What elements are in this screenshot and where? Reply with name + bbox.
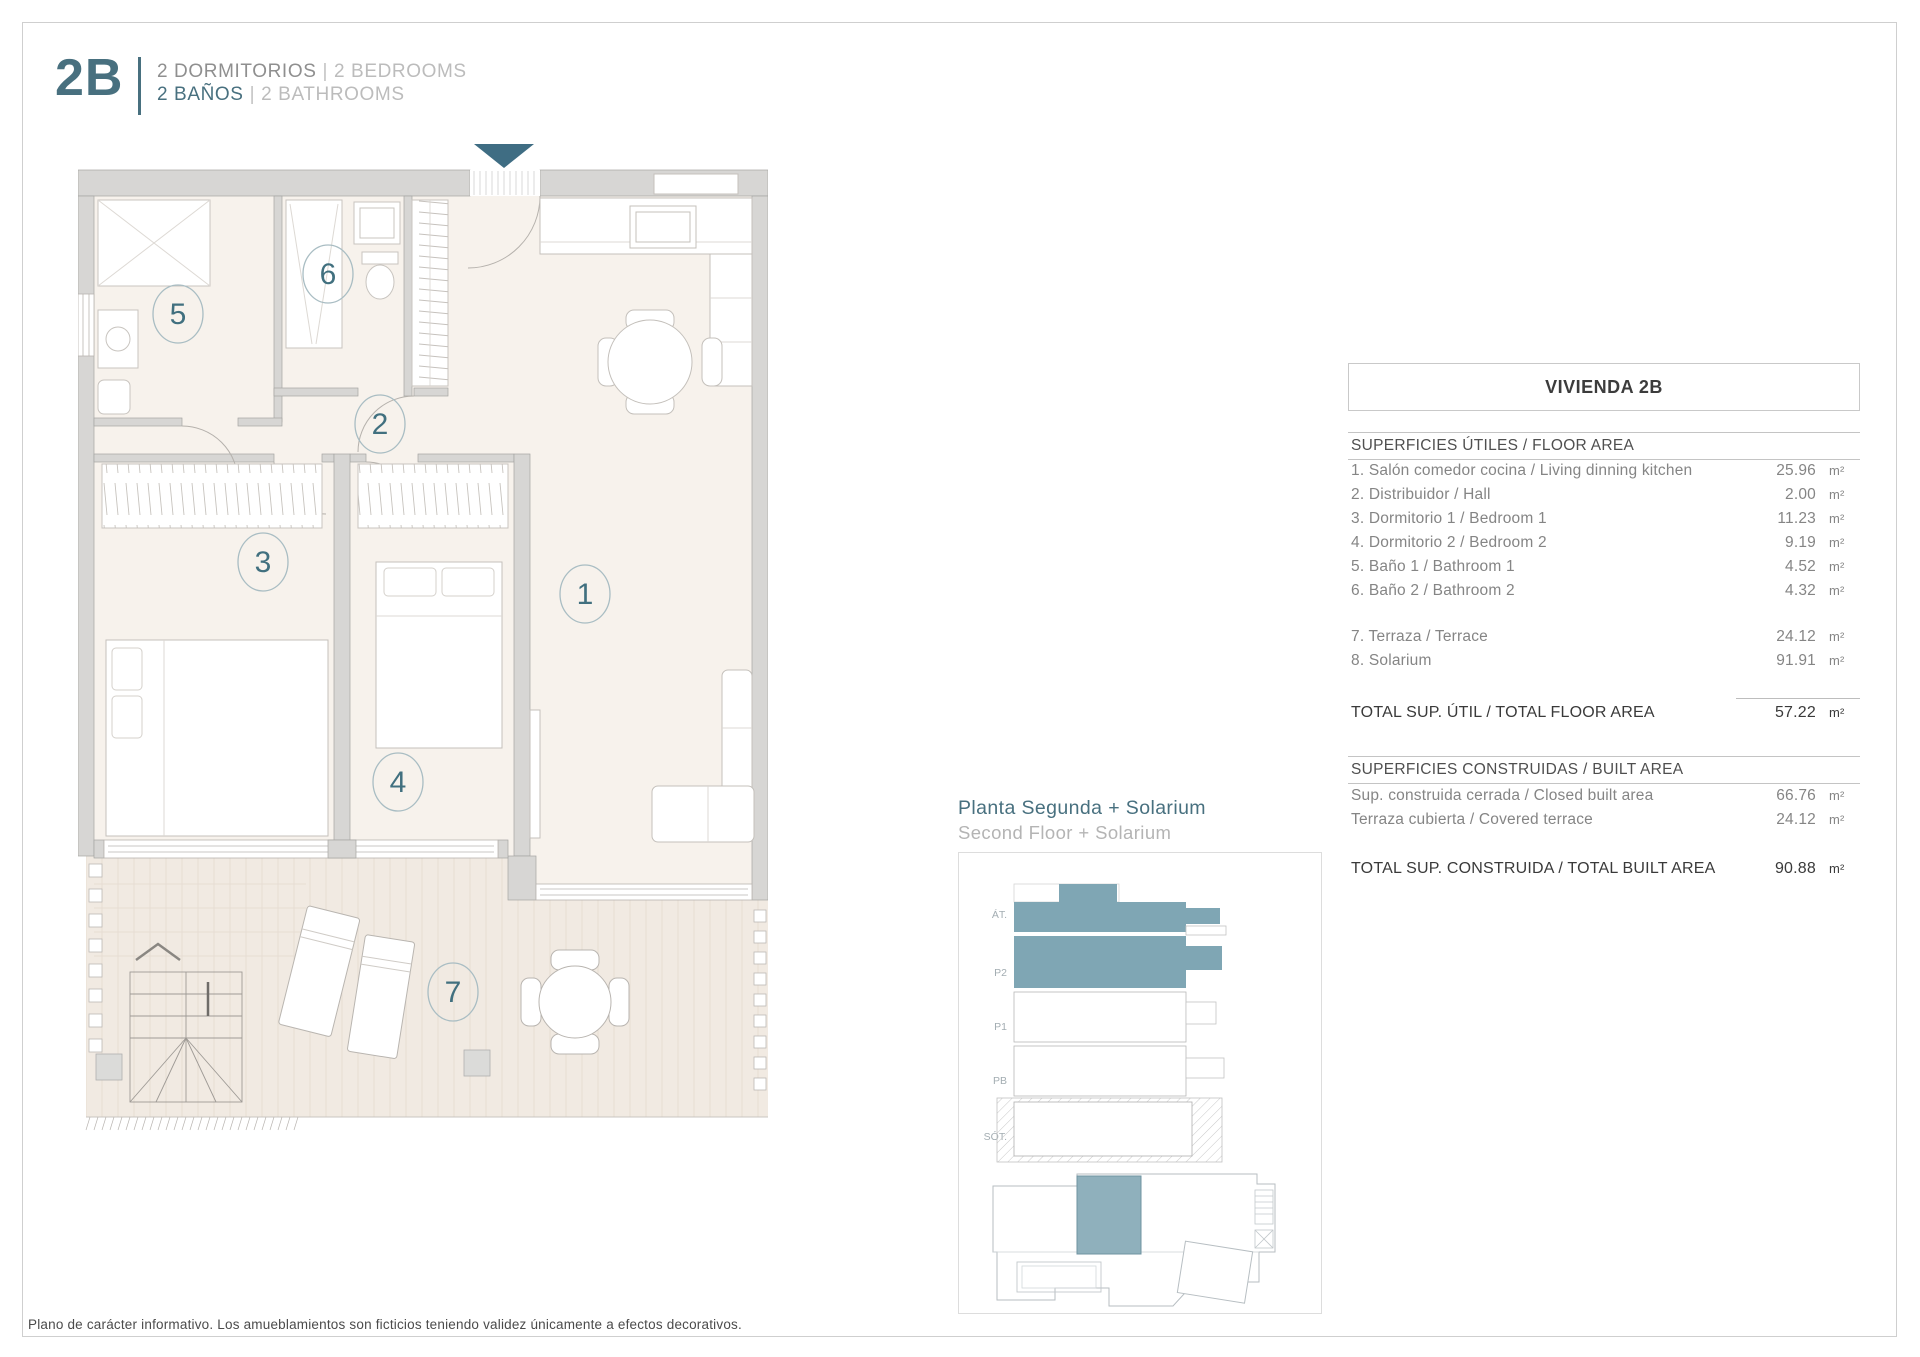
entry-arrow-icon	[474, 144, 534, 168]
row-label: 2. Distribuidor / Hall	[1348, 486, 1736, 504]
row-unit: m²	[1816, 583, 1860, 598]
svg-text:P2: P2	[994, 967, 1007, 979]
separator: |	[244, 84, 262, 105]
row-label: 6. Baño 2 / Bathroom 2	[1348, 582, 1736, 600]
location-diagram-box: ÁT. P2 P1 PB SÓT.	[958, 852, 1322, 1314]
svg-text:2: 2	[372, 408, 389, 441]
total-built-row: TOTAL SUP. CONSTRUIDA / TOTAL BUILT AREA…	[1348, 860, 1860, 878]
row-label: Terraza cubierta / Covered terrace	[1348, 811, 1736, 829]
entry-closet	[412, 200, 448, 386]
total-divider	[1736, 698, 1860, 699]
disclaimer-text: Plano de carácter informativo. Los amueb…	[28, 1317, 742, 1332]
living-floor-extension	[508, 840, 752, 886]
row-unit: m²	[1816, 463, 1860, 478]
planter-box	[464, 1050, 490, 1076]
svg-text:P1: P1	[994, 1021, 1007, 1033]
key-plan-diagram	[993, 1174, 1275, 1306]
divider	[1348, 432, 1860, 433]
row-value: 4.52	[1736, 558, 1816, 576]
floorplan-sheet: 2B 2 DORMITORIOS|2 BEDROOMS 2 BAÑOS|2 BA…	[0, 0, 1920, 1357]
row-value: 9.19	[1736, 534, 1816, 552]
row-label: 7. Terraza / Terrace	[1348, 628, 1736, 646]
row-unit: m²	[1816, 511, 1860, 526]
row-label: Sup. construida cerrada / Closed built a…	[1348, 787, 1736, 805]
row-value: 11.23	[1736, 510, 1816, 528]
row-value: 2.00	[1736, 486, 1816, 504]
header-divider-bar	[138, 57, 141, 115]
rotated-wing	[1177, 1241, 1252, 1303]
table-row: Terraza cubierta / Covered terrace 24.12…	[1348, 811, 1860, 829]
total-label: TOTAL SUP. ÚTIL / TOTAL FLOOR AREA	[1348, 704, 1736, 722]
row-label: 3. Dormitorio 1 / Bedroom 1	[1348, 510, 1736, 528]
row-unit: m²	[1816, 535, 1860, 550]
row-value: 66.76	[1736, 787, 1816, 805]
divider	[1348, 756, 1860, 757]
total-value: 57.22	[1736, 704, 1816, 722]
location-title-es: Planta Segunda + Solarium	[958, 797, 1206, 820]
building-section-diagram: ÁT. P2 P1 PB SÓT.	[984, 884, 1226, 1162]
svg-text:4: 4	[390, 766, 407, 799]
svg-text:PB: PB	[993, 1075, 1007, 1087]
total-label: TOTAL SUP. CONSTRUIDA / TOTAL BUILT AREA	[1348, 860, 1736, 878]
table-row: 4. Dormitorio 2 / Bedroom 2 9.19 m²	[1348, 534, 1860, 552]
row-unit: m²	[1816, 487, 1860, 502]
row-label: 4. Dormitorio 2 / Bedroom 2	[1348, 534, 1736, 552]
table-title: VIVIENDA 2B	[1348, 363, 1860, 411]
baths-es: 2 BAÑOS	[157, 84, 244, 105]
svg-text:6: 6	[320, 258, 337, 291]
table-row: 5. Baño 1 / Bathroom 1 4.52 m²	[1348, 558, 1860, 576]
tv-unit	[530, 710, 540, 838]
location-title-en: Second Floor + Solarium	[958, 822, 1171, 844]
table-row: 7. Terraza / Terrace 24.12 m²	[1348, 628, 1860, 646]
row-value: 25.96	[1736, 462, 1816, 480]
built-area-section-header: SUPERFICIES CONSTRUIDAS / BUILT AREA	[1348, 761, 1860, 779]
row-value: 24.12	[1736, 628, 1816, 646]
bedrooms-es: 2 DORMITORIOS	[157, 61, 316, 82]
divider	[1348, 783, 1860, 784]
row-unit: m²	[1816, 653, 1860, 668]
floor-area-section-header: SUPERFICIES ÚTILES / FLOOR AREA	[1348, 437, 1860, 455]
svg-text:5: 5	[170, 298, 187, 331]
svg-text:7: 7	[445, 976, 462, 1009]
row-value: 91.91	[1736, 652, 1816, 670]
floor-plan: 1 2 3 4 5 6 7	[78, 142, 768, 1132]
row-unit: m²	[1816, 788, 1860, 803]
table-row: 8. Solarium 91.91 m²	[1348, 652, 1860, 670]
bedrooms-en: 2 BEDROOMS	[334, 61, 467, 82]
svg-text:3: 3	[255, 546, 272, 579]
kitchen-hob	[654, 174, 738, 194]
table-row: 1. Salón comedor cocina / Living dinning…	[1348, 462, 1860, 480]
table-row: 6. Baño 2 / Bathroom 2 4.32 m²	[1348, 582, 1860, 600]
planter-strip-right	[754, 910, 766, 1090]
row-unit: m²	[1816, 559, 1860, 574]
header-bedrooms-line: 2 DORMITORIOS|2 BEDROOMS	[157, 61, 467, 83]
table-row: 3. Dormitorio 1 / Bedroom 1 11.23 m²	[1348, 510, 1860, 528]
row-label: 5. Baño 1 / Bathroom 1	[1348, 558, 1736, 576]
terrace-edge-hatch	[86, 1117, 298, 1130]
row-label: 1. Salón comedor cocina / Living dinning…	[1348, 462, 1736, 480]
svg-text:1: 1	[577, 578, 594, 611]
separator: |	[316, 61, 334, 82]
divider	[1348, 459, 1860, 460]
highlighted-floors	[1014, 884, 1222, 988]
total-floor-row: TOTAL SUP. ÚTIL / TOTAL FLOOR AREA 57.22…	[1348, 704, 1860, 722]
bedroom2-furniture	[358, 464, 508, 748]
row-unit: m²	[1816, 812, 1860, 827]
total-value: 90.88	[1736, 860, 1816, 878]
table-row: 2. Distribuidor / Hall 2.00 m²	[1348, 486, 1860, 504]
baths-en: 2 BATHROOMS	[261, 84, 405, 105]
total-unit: m²	[1816, 705, 1860, 720]
row-unit: m²	[1816, 629, 1860, 644]
bedroom1-furniture	[102, 464, 328, 836]
header-baths-line: 2 BAÑOS|2 BATHROOMS	[157, 84, 405, 106]
svg-text:ÁT.: ÁT.	[992, 908, 1007, 921]
table-row: Sup. construida cerrada / Closed built a…	[1348, 787, 1860, 805]
unit-code: 2B	[55, 48, 123, 108]
location-diagrams: ÁT. P2 P1 PB SÓT.	[959, 853, 1321, 1313]
row-label: 8. Solarium	[1348, 652, 1736, 670]
highlighted-unit	[1077, 1176, 1141, 1254]
row-value: 24.12	[1736, 811, 1816, 829]
planter-box	[96, 1054, 122, 1080]
total-unit: m²	[1816, 861, 1860, 876]
row-value: 4.32	[1736, 582, 1816, 600]
